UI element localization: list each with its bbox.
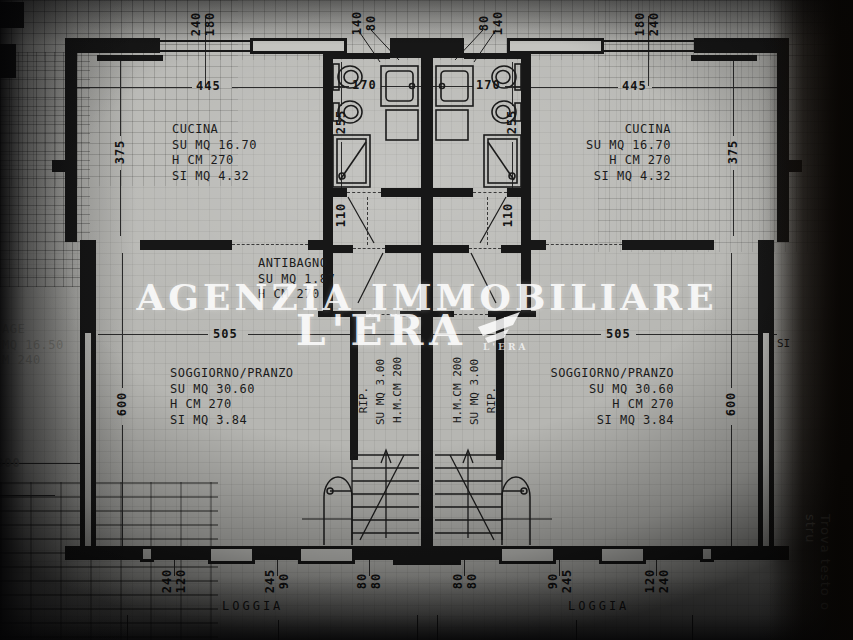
dim-label: 120 [643,569,657,594]
viewer-vertical-text: Trova testo o stru [803,514,833,640]
dim-label: 90 [277,573,291,589]
rip-left-line2: SU MQ 3.00 [374,359,387,425]
shower-icon [333,135,370,187]
dim-label: 120 [174,569,188,594]
dim-label: 255 [334,110,348,135]
dim-label: 240 [160,569,174,594]
room-label-loggia-left: LOGGIA [222,599,283,613]
dim-label: 80 [364,15,378,31]
stairs [352,450,419,540]
room-name: CUCINA [586,122,671,138]
dim-label: 80 [369,573,383,589]
dim-label: 170 [352,78,377,92]
room-label-cucina-left: CUCINA SU MQ 16.70 H CM 270 SI MQ 4.32 [172,122,257,184]
dim-label: 375 [113,140,127,165]
room-name: SOGGIORNO/PRANZO [550,366,674,382]
dim-label: 170 [476,78,501,92]
room-label-soggiorno-right: SOGGIORNO/PRANZO SU MQ 30.60 H CM 270 SI… [550,366,674,428]
dim-label: 180 [203,12,217,37]
rip-right-line2: SU MQ 3.00 [468,359,481,425]
dim-label: 140 [491,11,505,36]
rip-left-line3: H.M.CM 200 [391,357,404,423]
dim-label: 245 [263,569,277,594]
room-label-cucina-right: CUCINA SU MQ 16.70 H CM 270 SI MQ 4.32 [586,122,671,184]
dim-label: 180 [633,12,647,37]
dim-label: 240 [647,12,661,37]
arched-door [324,477,352,545]
room-label-loggia-right: LOGGIA [568,599,629,613]
floorplan-photo: 240 180 180 240 140 80 80 140 445 445 37… [0,0,853,640]
dim-label: 255 [505,110,519,135]
dim-label: 80 [451,573,465,589]
dim-label: 80 [465,573,479,589]
dim-label: 140 [350,11,364,36]
room-name: ANTIBAGNO [258,256,335,272]
cabinet-icon [386,110,418,140]
dim-label: 110 [501,203,515,228]
dim-label: 245 [560,569,574,594]
leader-lines [358,30,399,62]
room-label-rip-left: RIP. [357,387,370,414]
rip-right-line1: H.M.CM 200 [451,357,464,423]
dim-label: 80 [477,15,491,31]
dim-label: 505 [213,327,238,341]
right-dark-band: Trova testo o stru [769,0,853,640]
room-label-rip-right: RIP. [485,387,498,414]
dim-label: 240 [189,12,203,37]
dim-label: 240 [657,569,671,594]
dim-label: 600 [115,392,129,417]
dim-label: 110 [334,203,348,228]
dim-label: 445 [622,79,647,93]
room-label-garage-clipped: AGE MQ 16.50 M 240 [2,322,64,369]
dim-label: 375 [726,140,740,165]
room-name: CUCINA [172,122,257,138]
dim-label: 90 [546,573,560,589]
sink-icon [381,66,418,106]
dim-label: 445 [196,79,221,93]
watermark-logo-caption: L'ERA [483,342,528,352]
dim-label: 600 [724,392,738,417]
watermark-brand: L'ERA [296,306,468,355]
agency-flag-logo [476,312,522,346]
room-name: SOGGIORNO/PRANZO [170,366,294,382]
dim-label: 505 [606,327,631,341]
dim-label: 300 [0,456,20,470]
dim-label: 80 [355,573,369,589]
room-label-soggiorno-left: SOGGIORNO/PRANZO SU MQ 30.60 H CM 270 SI… [170,366,294,428]
